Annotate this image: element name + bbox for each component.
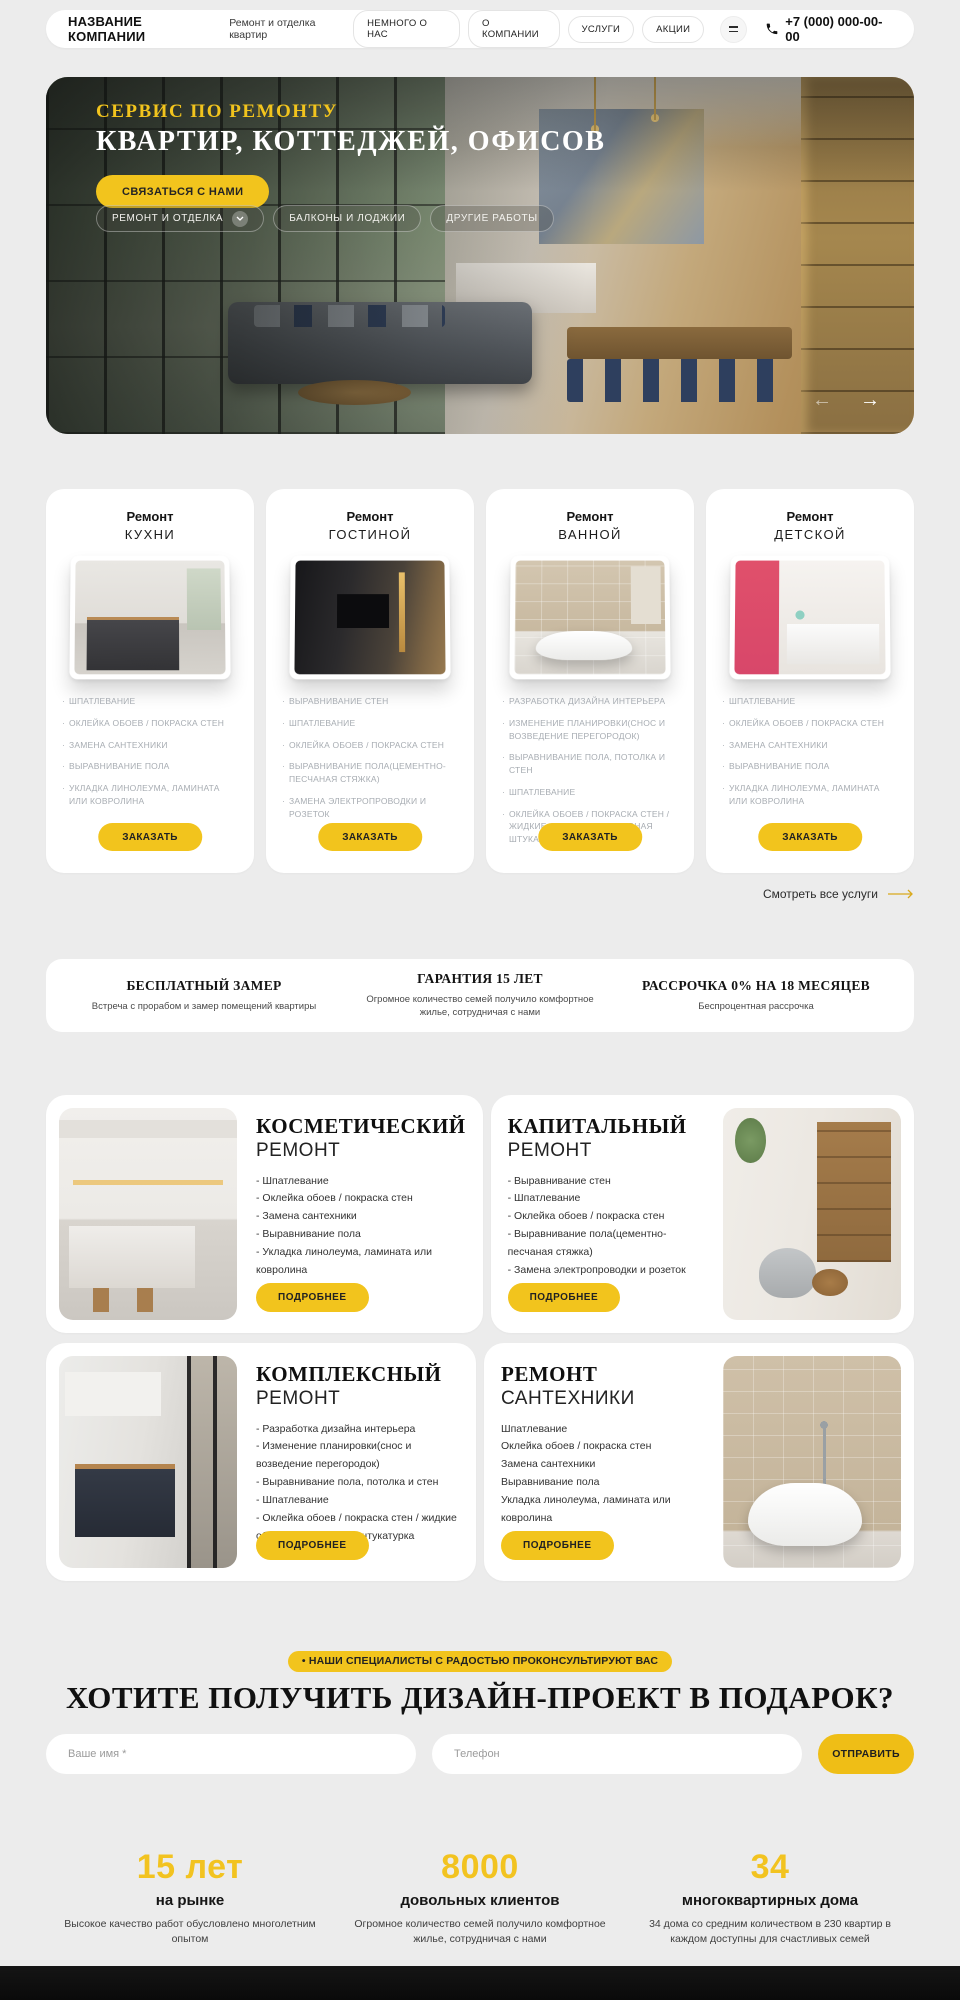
list-item: РАЗРАБОТКА ДИЗАЙНА ИНТЕРЬЕРА xyxy=(502,695,665,708)
phone-link[interactable]: +7 (000) 000-00-00 xyxy=(765,14,894,44)
service-card-subtitle: ВАННОЙ xyxy=(502,527,678,542)
list-item: Шпатлевание xyxy=(501,1421,704,1439)
list-item: ЗАМЕНА ЭЛЕКТРОПРОВОДКИ И РОЗЕТОК xyxy=(282,795,458,821)
phone-input[interactable] xyxy=(432,1734,802,1774)
lead-form: ОТПРАВИТЬ xyxy=(46,1734,914,1774)
benefit-text: Беспроцентная рассрочка xyxy=(631,1000,881,1013)
stat-value: 34 xyxy=(640,1848,900,1887)
cosmetic-repair-photo xyxy=(59,1108,237,1320)
repair-card-plumbing: РЕМОНТ САНТЕХНИКИ Шпатлевание Оклейка об… xyxy=(484,1343,914,1581)
repair-types-row-1: КОСМЕТИЧЕСКИЙ РЕМОНТ - Шпатлевание - Окл… xyxy=(46,1095,914,1333)
menu-button[interactable] xyxy=(720,16,746,43)
cta-title: ХОТИТЕ ПОЛУЧИТЬ ДИЗАЙН-ПРОЕКТ В ПОДАРОК? xyxy=(0,1680,960,1716)
more-details-button[interactable]: ПОДРОБНЕЕ xyxy=(501,1531,614,1560)
service-card-living-room: Ремонт ГОСТИНОЙ ВЫРАВНИВАНИЕ СТЕН ШПАТЛЕ… xyxy=(266,489,474,873)
list-item: Выравнивание пола xyxy=(501,1474,704,1492)
service-list: ВЫРАВНИВАНИЕ СТЕН ШПАТЛЕВАНИЕ ОКЛЕЙКА ОБ… xyxy=(282,695,458,820)
nav-item-company[interactable]: О КОМПАНИИ xyxy=(468,10,560,48)
list-item: ЗАМЕНА САНТЕХНИКИ xyxy=(62,739,168,752)
repair-card-body: КОСМЕТИЧЕСКИЙ РЕМОНТ - Шпатлевание - Окл… xyxy=(252,1108,470,1320)
more-details-button[interactable]: ПОДРОБНЕЕ xyxy=(256,1531,369,1560)
list-item: ВЫРАВНИВАНИЕ СТЕН xyxy=(282,695,388,708)
service-list: ШПАТЛЕВАНИЕ ОКЛЕЙКА ОБОЕВ / ПОКРАСКА СТЕ… xyxy=(722,695,898,808)
list-item: Укладка линолеума, ламината или ковролин… xyxy=(501,1492,704,1528)
view-all-label: Смотреть все услуги xyxy=(763,887,878,901)
repair-card-title: КОМПЛЕКСНЫЙ xyxy=(256,1362,459,1387)
stat-label: на рынке xyxy=(60,1892,320,1909)
view-all-services-link[interactable]: Смотреть все услуги xyxy=(46,887,914,901)
nav-item-promos[interactable]: АКЦИИ xyxy=(642,16,704,43)
list-item: УКЛАДКА ЛИНОЛЕУМА, ЛАМИНАТА ИЛИ КОВРОЛИН… xyxy=(722,782,898,808)
bathtub-shape xyxy=(748,1483,862,1547)
stats-section: 15 лет на рынке Высокое качество работ о… xyxy=(60,1848,900,1947)
list-item: ОКЛЕЙКА ОБОЕВ / ПОКРАСКА СТЕН xyxy=(722,717,884,730)
list-item: - Разработка дизайна интерьера xyxy=(256,1421,459,1439)
stat-value: 15 лет xyxy=(60,1848,320,1887)
benefit-title: БЕСПЛАТНЫЙ ЗАМЕР xyxy=(76,978,332,994)
service-card-title: Ремонт xyxy=(282,509,458,524)
repair-card-subtitle: РЕМОНТ xyxy=(256,1388,459,1410)
kitchen-photo xyxy=(74,561,225,675)
benefit-title: РАССРОЧКА 0% НА 18 МЕСЯЦЕВ xyxy=(628,978,884,994)
arrow-right-icon[interactable]: → xyxy=(856,386,884,414)
main-nav: НЕМНОГО О НАС О КОМПАНИИ УСЛУГИ АКЦИИ xyxy=(353,10,704,48)
service-photo-frame xyxy=(509,556,670,680)
list-item: - Оклейка обоев / покраска стен xyxy=(256,1190,466,1208)
tab-balconies[interactable]: БАЛКОНЫ И ЛОДЖИИ xyxy=(273,205,421,232)
benefit-text: Огромное количество семей получило комфо… xyxy=(355,993,605,1020)
more-details-button[interactable]: ПОДРОБНЕЕ xyxy=(256,1283,369,1312)
hero-slider: СЕРВИС ПО РЕМОНТУ КВАРТИР, КОТТЕДЖЕЙ, ОФ… xyxy=(46,77,914,434)
plant-shape xyxy=(735,1118,765,1163)
order-button[interactable]: ЗАКАЗАТЬ xyxy=(318,823,422,851)
stat-text: Высокое качество работ обусловлено много… xyxy=(60,1917,320,1947)
service-card-title: Ремонт xyxy=(62,509,238,524)
service-card-subtitle: КУХНИ xyxy=(62,527,238,542)
complex-repair-photo xyxy=(59,1356,237,1568)
service-photo-frame xyxy=(729,556,890,680)
contact-us-button[interactable]: СВЯЗАТЬСЯ С НАМИ xyxy=(96,175,269,208)
list-item: - Оклейка обоев / покраска стен xyxy=(508,1208,704,1226)
repair-card-capital: КАПИТАЛЬНЫЙ РЕМОНТ - Выравнивание стен -… xyxy=(491,1095,914,1333)
chevron-down-icon xyxy=(232,211,248,227)
list-item: ШПАТЛЕВАНИЕ xyxy=(62,695,135,708)
list-item: ЗАМЕНА САНТЕХНИКИ xyxy=(722,739,828,752)
menu-icon xyxy=(729,26,738,28)
header-bar: НАЗВАНИЕ КОМПАНИИ Ремонт и отделка кварт… xyxy=(46,10,914,48)
cta-badge: • НАШИ СПЕЦИАЛИСТЫ С РАДОСТЬЮ ПРОКОНСУЛЬ… xyxy=(288,1651,672,1672)
list-item: Оклейка обоев / покраска стен xyxy=(501,1438,704,1456)
benefit-title: ГАРАНТИЯ 15 ЛЕТ xyxy=(352,971,608,987)
repair-card-body: КОМПЛЕКСНЫЙ РЕМОНТ - Разработка дизайна … xyxy=(252,1356,463,1568)
service-list: ШПАТЛЕВАНИЕ ОКЛЕЙКА ОБОЕВ / ПОКРАСКА СТЕ… xyxy=(62,695,238,808)
company-name: НАЗВАНИЕ КОМПАНИИ xyxy=(68,14,219,44)
list-item: - Шпатлевание xyxy=(256,1492,459,1510)
stat-years: 15 лет на рынке Высокое качество работ о… xyxy=(60,1848,320,1947)
nav-item-about-us[interactable]: НЕМНОГО О НАС xyxy=(353,10,460,48)
benefit-free-measure: БЕСПЛАТНЫЙ ЗАМЕР Встреча с прорабом и за… xyxy=(76,978,332,1013)
service-card-title: Ремонт xyxy=(722,509,898,524)
repair-list: Шпатлевание Оклейка обоев / покраска сте… xyxy=(501,1421,704,1528)
nav-item-services[interactable]: УСЛУГИ xyxy=(568,16,635,43)
stat-label: довольных клиентов xyxy=(350,1892,610,1909)
list-item: - Шпатлевание xyxy=(508,1190,704,1208)
repair-card-title: КАПИТАЛЬНЫЙ xyxy=(508,1114,704,1139)
tab-label: ДРУГИЕ РАБОТЫ xyxy=(446,213,537,224)
phone-icon xyxy=(765,22,779,36)
list-item: - Выравнивание пола(цементно-песчаная ст… xyxy=(508,1226,704,1262)
arrow-left-icon[interactable]: ← xyxy=(808,386,836,414)
arrow-right-long-icon xyxy=(888,889,914,899)
benefit-text: Встреча с прорабом и замер помещений ква… xyxy=(79,1000,329,1013)
name-input[interactable] xyxy=(46,1734,416,1774)
menu-icon xyxy=(729,31,738,33)
list-item: - Замена электропроводки и розеток xyxy=(508,1262,704,1280)
repair-card-title: РЕМОНТ xyxy=(501,1362,704,1387)
hero-tabs: РЕМОНТ И ОТДЕЛКА БАЛКОНЫ И ЛОДЖИИ ДРУГИЕ… xyxy=(96,205,554,232)
repair-card-subtitle: САНТЕХНИКИ xyxy=(501,1388,704,1410)
stat-text: Огромное количество семей получило комфо… xyxy=(350,1917,610,1947)
list-item: ШПАТЛЕВАНИЕ xyxy=(282,717,355,730)
submit-button[interactable]: ОТПРАВИТЬ xyxy=(818,1734,914,1774)
coffee-table-shape xyxy=(812,1269,848,1297)
service-card-kitchen: Ремонт КУХНИ ШПАТЛЕВАНИЕ ОКЛЕЙКА ОБОЕВ /… xyxy=(46,489,254,873)
service-card-title: Ремонт xyxy=(502,509,678,524)
phone-number: +7 (000) 000-00-00 xyxy=(785,14,894,44)
hero-kicker: СЕРВИС ПО РЕМОНТУ xyxy=(96,101,605,123)
capital-repair-photo xyxy=(723,1108,901,1320)
page: НАЗВАНИЕ КОМПАНИИ Ремонт и отделка кварт… xyxy=(0,0,960,2000)
repair-card-body: КАПИТАЛЬНЫЙ РЕМОНТ - Выравнивание стен -… xyxy=(504,1108,708,1320)
more-details-button[interactable]: ПОДРОБНЕЕ xyxy=(508,1283,621,1312)
repair-types-row-2: КОМПЛЕКСНЫЙ РЕМОНТ - Разработка дизайна … xyxy=(46,1343,914,1581)
list-item: - Укладка линолеума, ламината или коврол… xyxy=(256,1244,466,1280)
list-item: ИЗМЕНЕНИЕ ПЛАНИРОВКИ(СНОС И ВОЗВЕДЕНИЕ П… xyxy=(502,717,678,743)
list-item: ВЫРАВНИВАНИЕ ПОЛА xyxy=(722,760,830,773)
list-item: ШПАТЛЕВАНИЕ xyxy=(722,695,795,708)
benefits-strip: БЕСПЛАТНЫЙ ЗАМЕР Встреча с прорабом и за… xyxy=(46,959,914,1032)
repair-list: - Разработка дизайна интерьера - Изменен… xyxy=(256,1421,459,1546)
list-item: ВЫРАВНИВАНИЕ ПОЛА, ПОТОЛКА И СТЕН xyxy=(502,751,678,777)
company-tagline: Ремонт и отделка квартир xyxy=(229,17,353,41)
benefit-warranty: ГАРАНТИЯ 15 ЛЕТ Огромное количество семе… xyxy=(352,971,608,1020)
stat-text: 34 дома со средним количеством в 230 ква… xyxy=(640,1917,900,1947)
list-item: - Выравнивание пола xyxy=(256,1226,466,1244)
hero-content: СЕРВИС ПО РЕМОНТУ КВАРТИР, КОТТЕДЖЕЙ, ОФ… xyxy=(96,101,605,208)
repair-card-title: КОСМЕТИЧЕСКИЙ xyxy=(256,1114,466,1139)
tab-repair-finishing[interactable]: РЕМОНТ И ОТДЕЛКА xyxy=(96,205,264,232)
hero-title: КВАРТИР, КОТТЕДЖЕЙ, ОФИСОВ xyxy=(96,126,605,158)
bathroom-photo xyxy=(514,561,665,675)
cta-section: • НАШИ СПЕЦИАЛИСТЫ С РАДОСТЬЮ ПРОКОНСУЛЬ… xyxy=(0,1651,960,1774)
list-item: УКЛАДКА ЛИНОЛЕУМА, ЛАМИНАТА ИЛИ КОВРОЛИН… xyxy=(62,782,238,808)
list-item: ВЫРАВНИВАНИЕ ПОЛА xyxy=(62,760,170,773)
service-card-subtitle: ГОСТИНОЙ xyxy=(282,527,458,542)
list-item: Замена сантехники xyxy=(501,1456,704,1474)
stat-buildings: 34 многоквартирных дома 34 дома со средн… xyxy=(640,1848,900,1947)
stat-clients: 8000 довольных клиентов Огромное количес… xyxy=(350,1848,610,1947)
slider-arrows: ← → xyxy=(808,386,884,414)
list-item: - Изменение планировки(снос и возведение… xyxy=(256,1438,459,1474)
list-item: - Замена сантехники xyxy=(256,1208,466,1226)
stat-value: 8000 xyxy=(350,1848,610,1887)
repair-card-body: РЕМОНТ САНТЕХНИКИ Шпатлевание Оклейка об… xyxy=(497,1356,708,1568)
service-photo-frame xyxy=(69,556,230,680)
plumbing-repair-photo xyxy=(723,1356,901,1568)
order-button[interactable]: ЗАКАЗАТЬ xyxy=(758,823,862,851)
kids-room-photo xyxy=(734,561,885,675)
tab-other-works[interactable]: ДРУГИЕ РАБОТЫ xyxy=(430,205,553,232)
list-item: - Выравнивание пола, потолка и стен xyxy=(256,1474,459,1492)
order-button[interactable]: ЗАКАЗАТЬ xyxy=(538,823,642,851)
list-item: ШПАТЛЕВАНИЕ xyxy=(502,786,575,799)
list-item: - Выравнивание стен xyxy=(508,1173,704,1191)
service-card-kids-room: Ремонт ДЕТСКОЙ ШПАТЛЕВАНИЕ ОКЛЕЙКА ОБОЕВ… xyxy=(706,489,914,873)
living-room-photo xyxy=(294,561,445,675)
stat-label: многоквартирных дома xyxy=(640,1892,900,1909)
repair-list: - Шпатлевание - Оклейка обоев / покраска… xyxy=(256,1173,466,1280)
pouf-shape xyxy=(759,1248,816,1299)
list-item: ОКЛЕЙКА ОБОЕВ / ПОКРАСКА СТЕН xyxy=(62,717,224,730)
repair-card-subtitle: РЕМОНТ xyxy=(508,1140,704,1162)
repair-card-subtitle: РЕМОНТ xyxy=(256,1140,466,1162)
service-photo-frame xyxy=(289,556,450,680)
list-item: ВЫРАВНИВАНИЕ ПОЛА(ЦЕМЕНТНО-ПЕСЧАНАЯ СТЯЖ… xyxy=(282,760,458,786)
repair-card-complex: КОМПЛЕКСНЫЙ РЕМОНТ - Разработка дизайна … xyxy=(46,1343,476,1581)
service-card-bathroom: Ремонт ВАННОЙ РАЗРАБОТКА ДИЗАЙНА ИНТЕРЬЕ… xyxy=(486,489,694,873)
list-item: ОКЛЕЙКА ОБОЕВ / ПОКРАСКА СТЕН xyxy=(282,739,444,752)
order-button[interactable]: ЗАКАЗАТЬ xyxy=(98,823,202,851)
brand: НАЗВАНИЕ КОМПАНИИ Ремонт и отделка кварт… xyxy=(68,14,353,44)
services-section: Ремонт КУХНИ ШПАТЛЕВАНИЕ ОКЛЕЙКА ОБОЕВ /… xyxy=(46,489,914,873)
tab-label: РЕМОНТ И ОТДЕЛКА xyxy=(112,213,223,224)
service-card-subtitle: ДЕТСКОЙ xyxy=(722,527,898,542)
repair-card-cosmetic: КОСМЕТИЧЕСКИЙ РЕМОНТ - Шпатлевание - Окл… xyxy=(46,1095,483,1333)
bathtub-shape xyxy=(536,631,633,661)
repair-list: - Выравнивание стен - Шпатлевание - Окле… xyxy=(508,1173,704,1280)
footer-band xyxy=(0,1966,960,2000)
tab-label: БАЛКОНЫ И ЛОДЖИИ xyxy=(289,213,405,224)
benefit-installment: РАССРОЧКА 0% НА 18 МЕСЯЦЕВ Беспроцентная… xyxy=(628,978,884,1013)
list-item: - Шпатлевание xyxy=(256,1173,466,1191)
